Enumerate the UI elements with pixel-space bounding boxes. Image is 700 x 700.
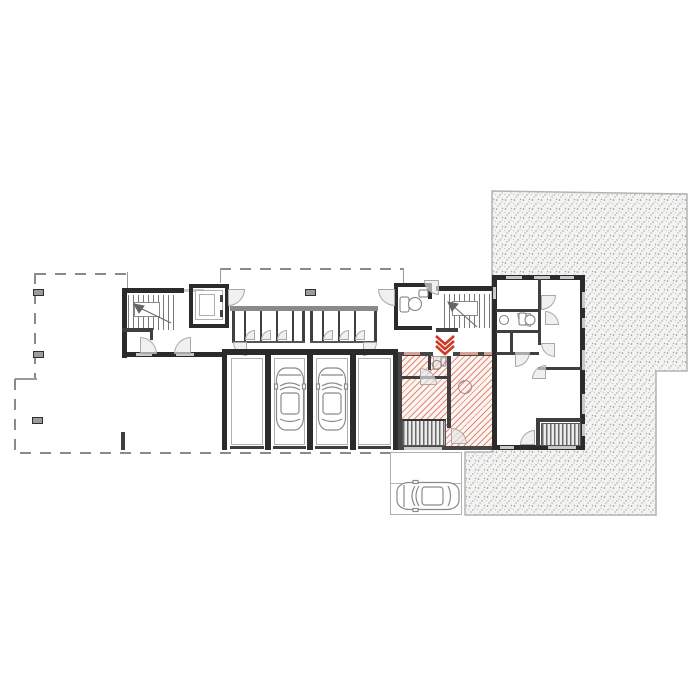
window bbox=[548, 446, 576, 449]
storage-wall bbox=[374, 311, 377, 343]
door-arc bbox=[339, 330, 349, 340]
door-arc bbox=[277, 330, 287, 340]
window bbox=[582, 394, 585, 414]
door-arc bbox=[323, 330, 333, 340]
unit-window bbox=[460, 352, 478, 355]
storage-wall bbox=[310, 311, 313, 343]
unit-stairs bbox=[402, 419, 446, 446]
window bbox=[560, 276, 574, 279]
right-building-stairs bbox=[541, 423, 581, 446]
boundary-connector bbox=[127, 272, 128, 289]
window bbox=[582, 424, 585, 436]
stair-wall bbox=[536, 418, 540, 446]
interior-wall bbox=[510, 332, 513, 352]
wc-wall bbox=[394, 326, 432, 330]
column-marker bbox=[33, 289, 44, 296]
garage-door bbox=[315, 446, 348, 449]
unit-bath-wall bbox=[428, 356, 431, 370]
wall-end bbox=[308, 445, 313, 450]
garage-door bbox=[273, 446, 306, 449]
window bbox=[493, 287, 496, 299]
door-arc bbox=[174, 337, 191, 354]
window bbox=[534, 276, 550, 279]
wall bbox=[492, 275, 497, 450]
garage-bay bbox=[231, 358, 263, 445]
interior-wall bbox=[538, 279, 541, 345]
boundary-connector bbox=[220, 268, 221, 283]
wall-end bbox=[222, 445, 227, 450]
parking-divider bbox=[390, 483, 462, 484]
wall bbox=[436, 328, 458, 332]
column-marker bbox=[305, 289, 316, 296]
storage-wall bbox=[232, 311, 235, 343]
window bbox=[500, 446, 514, 449]
dashed-boundary-top bbox=[35, 273, 128, 275]
elevator-wall bbox=[189, 284, 193, 328]
window bbox=[506, 276, 522, 279]
boundary-step bbox=[15, 378, 37, 380]
wall bbox=[122, 288, 127, 358]
garage-wall bbox=[222, 349, 227, 450]
storage-wall bbox=[302, 311, 305, 343]
window bbox=[582, 292, 585, 308]
garage-bay bbox=[316, 358, 348, 445]
stair-landing bbox=[452, 301, 478, 316]
garage-bay bbox=[274, 358, 305, 445]
elevator-wall bbox=[189, 324, 229, 328]
wall-stub bbox=[150, 328, 153, 340]
window bbox=[582, 350, 585, 370]
door-arc bbox=[140, 337, 157, 354]
interior-wall bbox=[496, 309, 539, 312]
unit-window bbox=[404, 447, 442, 450]
elevator-wall bbox=[189, 284, 229, 288]
interior-wall bbox=[496, 330, 539, 333]
garage-bay bbox=[358, 358, 391, 445]
door-arc bbox=[378, 289, 395, 306]
door-arc bbox=[228, 289, 245, 306]
door-arc bbox=[245, 330, 255, 340]
wall bbox=[436, 286, 498, 291]
elevator-door-mark bbox=[220, 310, 223, 317]
garage-wall bbox=[350, 349, 356, 450]
dashed-boundary-bottom bbox=[20, 452, 392, 454]
door-arc bbox=[261, 330, 271, 340]
stair-wall bbox=[536, 418, 581, 422]
door-arc bbox=[424, 280, 439, 295]
garage-wall bbox=[307, 349, 313, 450]
garage-door bbox=[358, 446, 391, 449]
elevator-door-mark bbox=[220, 295, 223, 302]
column-marker bbox=[32, 417, 43, 424]
wall bbox=[122, 328, 152, 332]
storage-divider bbox=[292, 311, 294, 343]
floor-plan-canvas bbox=[0, 0, 700, 700]
wall bbox=[122, 288, 184, 293]
elevator-cab-inner bbox=[199, 294, 215, 316]
boundary-connector bbox=[403, 268, 404, 283]
door-arc bbox=[355, 330, 365, 340]
toilet-icon bbox=[400, 290, 428, 312]
garage-wall bbox=[265, 349, 271, 450]
dashed-boundary-left-lower bbox=[14, 379, 16, 455]
wall-end bbox=[351, 445, 356, 450]
window bbox=[582, 318, 585, 328]
garage-door bbox=[230, 446, 264, 449]
unit-window bbox=[404, 352, 420, 355]
wall-stub bbox=[121, 432, 125, 450]
unit-interior-wall bbox=[447, 356, 451, 428]
dashed-boundary-top-centre bbox=[220, 268, 404, 270]
stair-landing bbox=[134, 302, 160, 317]
column-marker bbox=[33, 351, 44, 358]
wall-end bbox=[265, 445, 270, 450]
